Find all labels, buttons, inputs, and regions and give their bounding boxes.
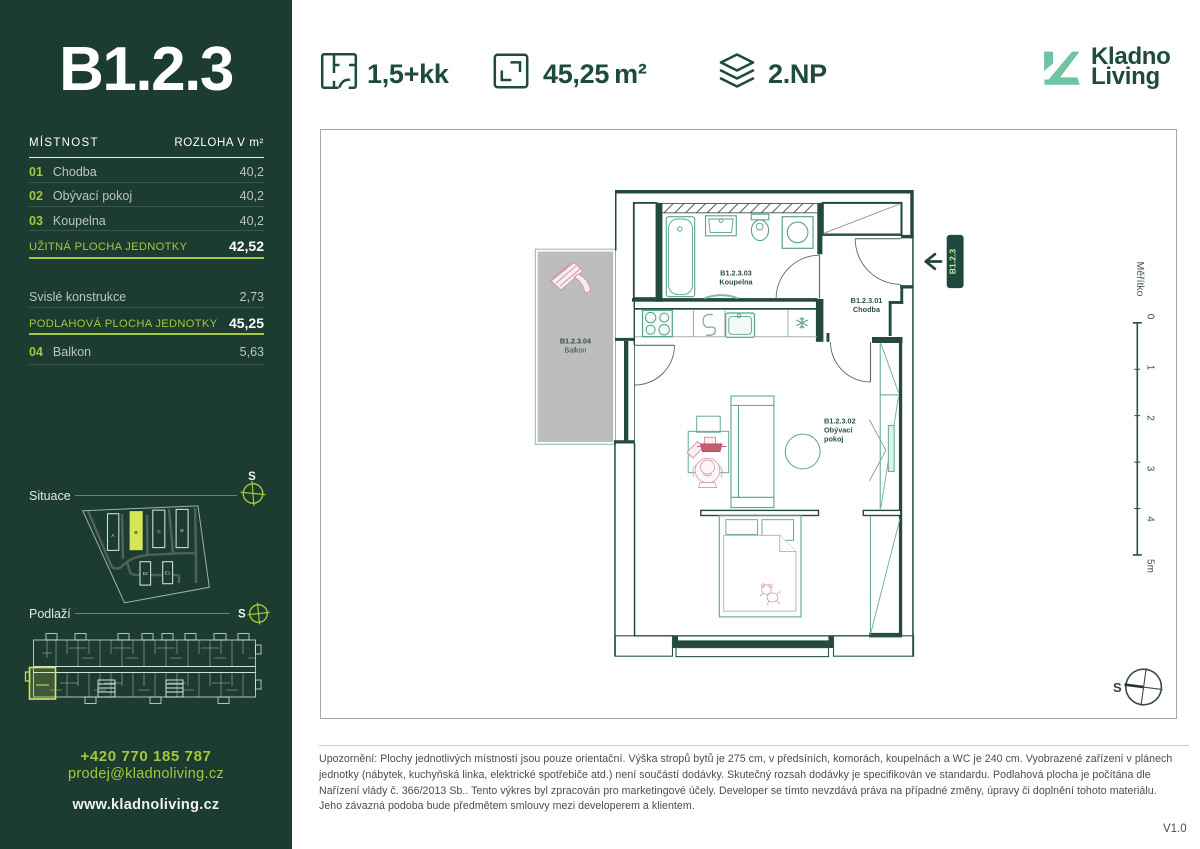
svg-text:S: S (238, 609, 246, 621)
svg-text:Obývací: Obývací (824, 426, 853, 435)
svg-text:1: 1 (1145, 365, 1156, 371)
svg-text:2: 2 (1145, 415, 1156, 421)
svg-text:5m: 5m (1145, 559, 1156, 573)
svg-text:B1.2.3.01: B1.2.3.01 (851, 296, 883, 305)
svg-text:3: 3 (1145, 466, 1156, 472)
svg-text:B1.2.3.02: B1.2.3.02 (824, 417, 856, 426)
svg-text:E1: E1 (165, 570, 171, 575)
svg-text:A: A (111, 533, 114, 538)
svg-text:0: 0 (1145, 314, 1156, 320)
svg-text:Balkon: Balkon (564, 346, 586, 355)
svg-text:B1.2.3: B1.2.3 (947, 249, 957, 275)
svg-text:Chodba: Chodba (853, 305, 881, 314)
svg-text:S: S (1113, 680, 1122, 695)
svg-text:E2: E2 (143, 571, 149, 576)
svg-text:Měřítko: Měřítko (1134, 261, 1146, 296)
svg-text:B1.2.3.04: B1.2.3.04 (560, 337, 591, 346)
svg-text:B1.2.3.03: B1.2.3.03 (720, 269, 752, 278)
svg-text:Koupelna: Koupelna (719, 278, 753, 287)
svg-text:4: 4 (1145, 516, 1156, 522)
svg-text:pokoj: pokoj (824, 435, 843, 444)
